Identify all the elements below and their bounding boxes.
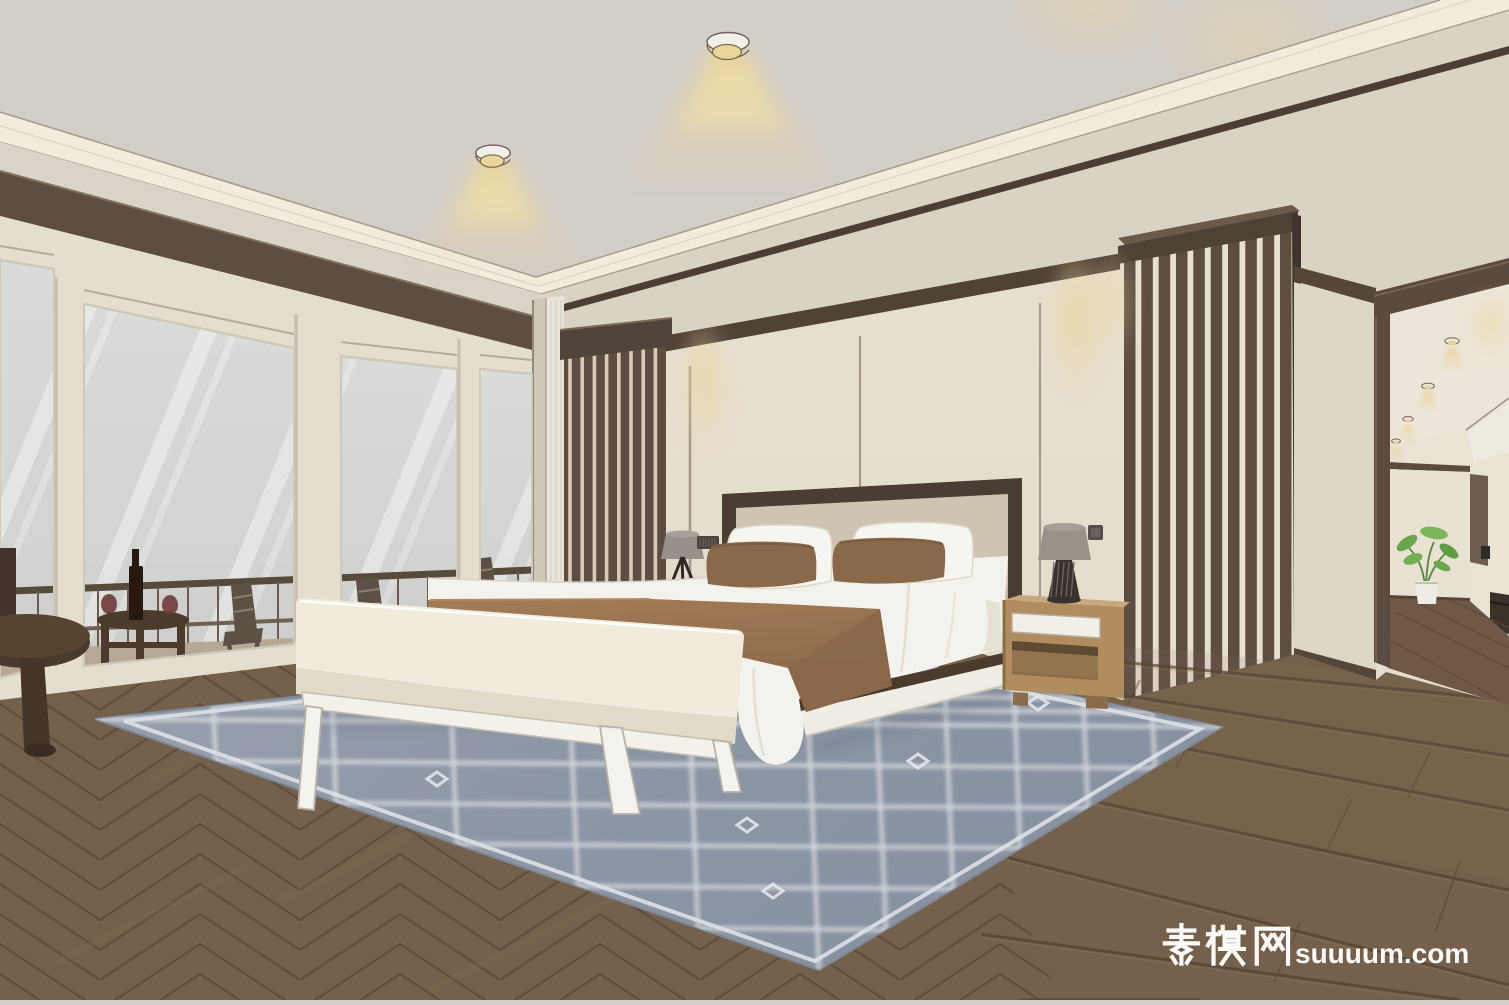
svg-text:suuuum.com: suuuum.com — [1295, 938, 1469, 969]
